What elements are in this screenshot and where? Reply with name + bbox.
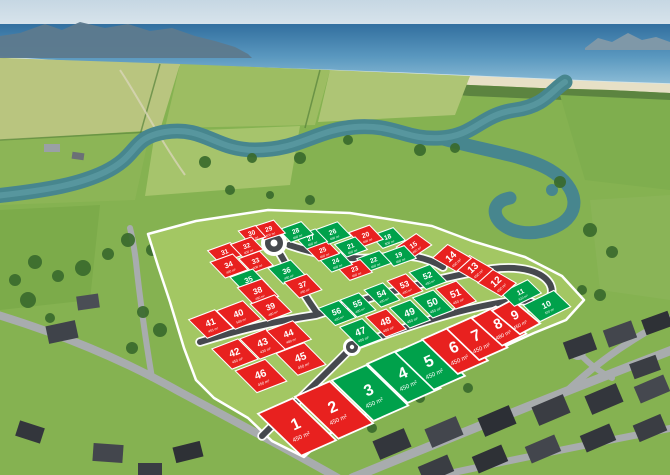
- tree: [102, 248, 114, 260]
- tree: [463, 383, 473, 393]
- tree: [45, 313, 55, 323]
- tree: [606, 246, 618, 258]
- tree: [343, 135, 353, 145]
- tree: [583, 223, 597, 237]
- tree: [28, 255, 42, 269]
- tree: [9, 274, 21, 286]
- tree: [554, 176, 566, 188]
- tree: [121, 233, 135, 247]
- tree: [126, 342, 138, 354]
- tree: [225, 185, 235, 195]
- tree: [52, 270, 64, 282]
- house-roof: [138, 463, 162, 475]
- tree: [75, 260, 91, 276]
- tree: [414, 144, 426, 156]
- tree: [450, 143, 460, 153]
- tree: [247, 153, 257, 163]
- tree: [305, 195, 315, 205]
- tree: [20, 292, 36, 308]
- tree: [294, 152, 306, 164]
- tree: [266, 191, 274, 199]
- tree: [137, 306, 149, 318]
- tree: [594, 289, 606, 301]
- house-roof: [44, 144, 60, 152]
- tree: [153, 323, 167, 337]
- house-roof: [92, 443, 123, 463]
- tree: [199, 156, 211, 168]
- aerial-subdivision-photo: 1450 m²2450 m²3450 m²4450 m²5450 m²6450 …: [0, 0, 670, 475]
